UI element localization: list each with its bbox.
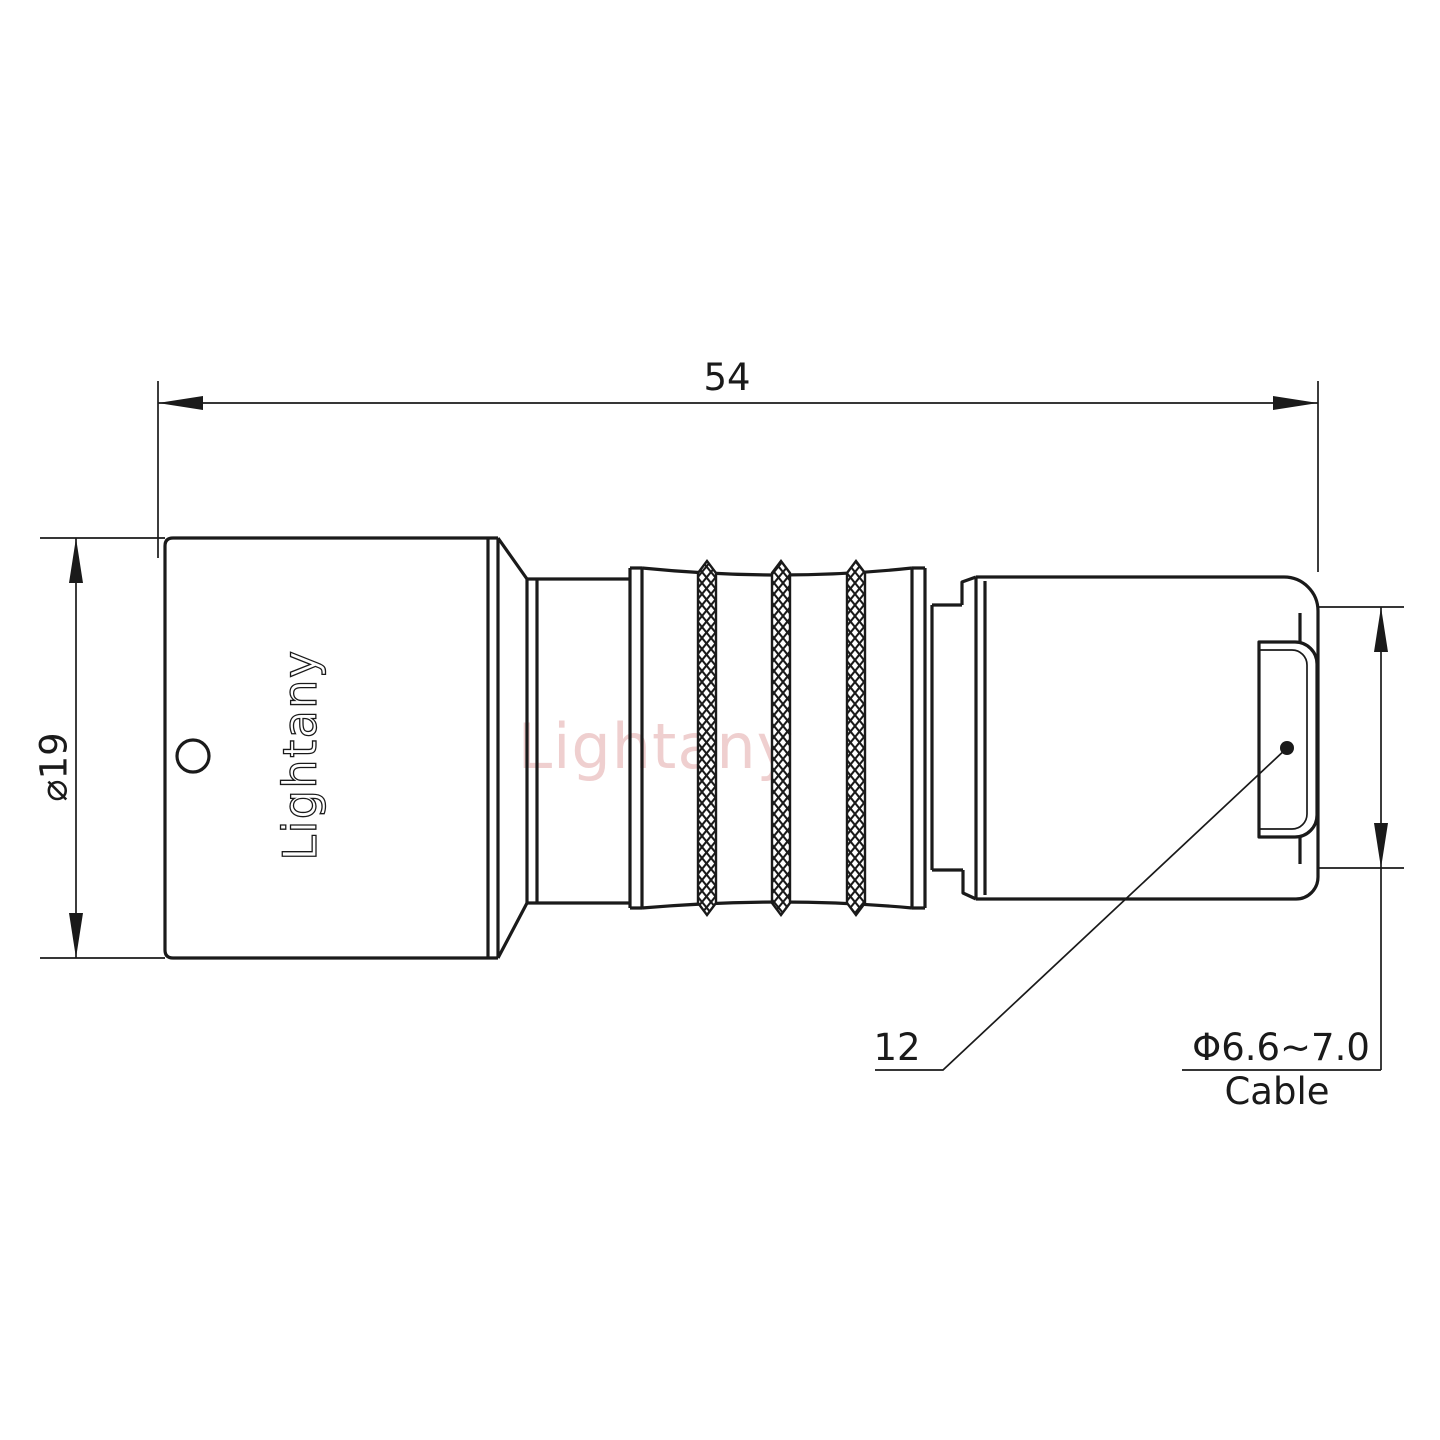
overall-length-value: 54: [703, 356, 750, 399]
arrowhead-up-icon: [1374, 607, 1388, 652]
cable-diameter-value: Φ6.6~7.0: [1192, 1026, 1370, 1069]
cable-caption: Cable: [1224, 1070, 1329, 1113]
knurl-band: [698, 561, 716, 915]
front-shell-outline: [165, 538, 498, 958]
rear-size-value: 12: [873, 1026, 920, 1069]
connector-technical-drawing: Lightany Lightany: [0, 0, 1440, 1440]
technical-drawing-page: Lightany Lightany: [0, 0, 1440, 1440]
arrowhead-right-icon: [1273, 396, 1318, 410]
arrowhead-down-icon: [69, 913, 83, 958]
rear-shell-edge-lines: [976, 577, 985, 899]
extension-lines: [1318, 607, 1404, 1070]
watermark-text: Lightany: [518, 710, 795, 783]
arrowhead-up-icon: [69, 538, 83, 583]
arrowhead-left-icon: [158, 396, 203, 410]
dimension-front-diameter: ⌀19: [33, 538, 166, 958]
cable-bushing-nose: [1259, 642, 1317, 837]
leader-dot-icon: [1280, 741, 1294, 755]
leader-line: [875, 748, 1287, 1070]
cable-annotation: Φ6.6~7.0 Cable: [1182, 1026, 1381, 1113]
dimension-rear-diameter: [1318, 607, 1404, 1070]
knurl-right-flange: [912, 568, 925, 908]
knurl-band: [847, 561, 865, 915]
knurl-band: [772, 561, 790, 915]
front-diameter-value: ⌀19: [33, 732, 76, 801]
rear-size-annotation: 12: [873, 741, 1294, 1070]
brand-engraving-text: Lightany: [273, 649, 327, 860]
pin-hole-icon: [177, 740, 209, 772]
cable-groove-outline: [932, 577, 976, 899]
front-shell-edge-lines: [488, 538, 498, 958]
extension-lines: [158, 381, 1318, 572]
arrowhead-down-icon: [1374, 823, 1388, 868]
